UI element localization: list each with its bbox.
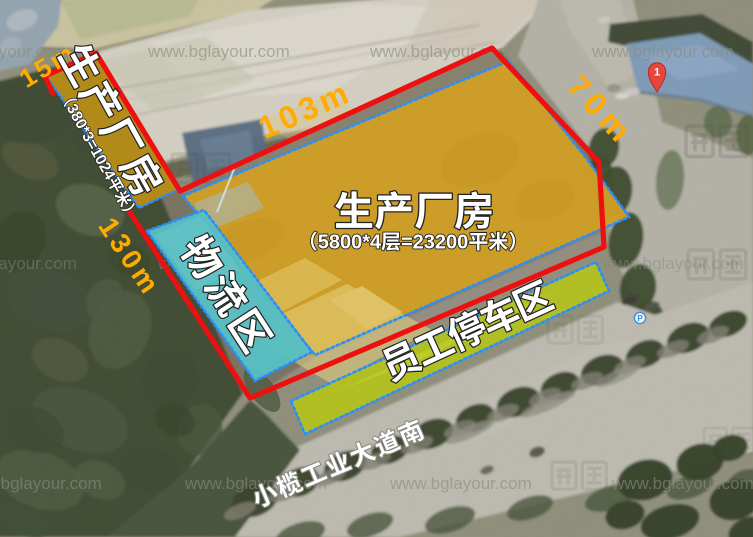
svg-text:=23200: =23200 — [401, 232, 468, 254]
svg-text:1: 1 — [654, 67, 660, 79]
svg-text:P: P — [637, 314, 643, 323]
svg-text:www.bglayour.com: www.bglayour.com — [601, 254, 744, 273]
svg-text:www.bglayour.com: www.bglayour.com — [0, 254, 77, 273]
svg-text:www.bglayour.com: www.bglayour.com — [591, 42, 734, 61]
svg-text:www.bglayour.com: www.bglayour.com — [147, 42, 290, 61]
svg-text:5800*4: 5800*4 — [318, 232, 382, 254]
svg-text:www.bglayour.com: www.bglayour.com — [611, 474, 753, 493]
svg-text:www.bglayour.com: www.bglayour.com — [184, 474, 327, 493]
svg-text:www.bglayour.com: www.bglayour.com — [389, 474, 532, 493]
svg-text:www.bglayour.com: www.bglayour.com — [0, 474, 102, 493]
